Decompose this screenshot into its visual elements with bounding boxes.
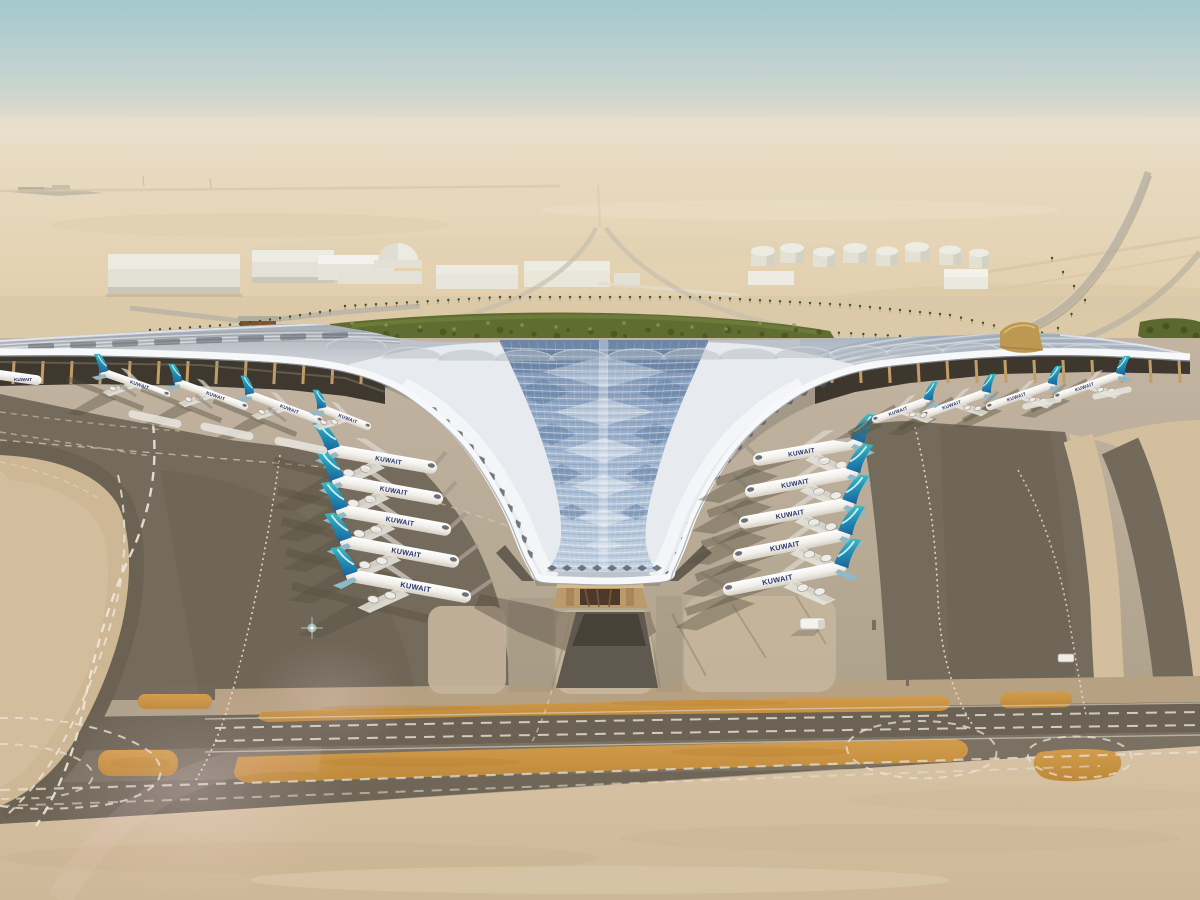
svg-text:KUWAIT: KUWAIT bbox=[14, 377, 32, 382]
